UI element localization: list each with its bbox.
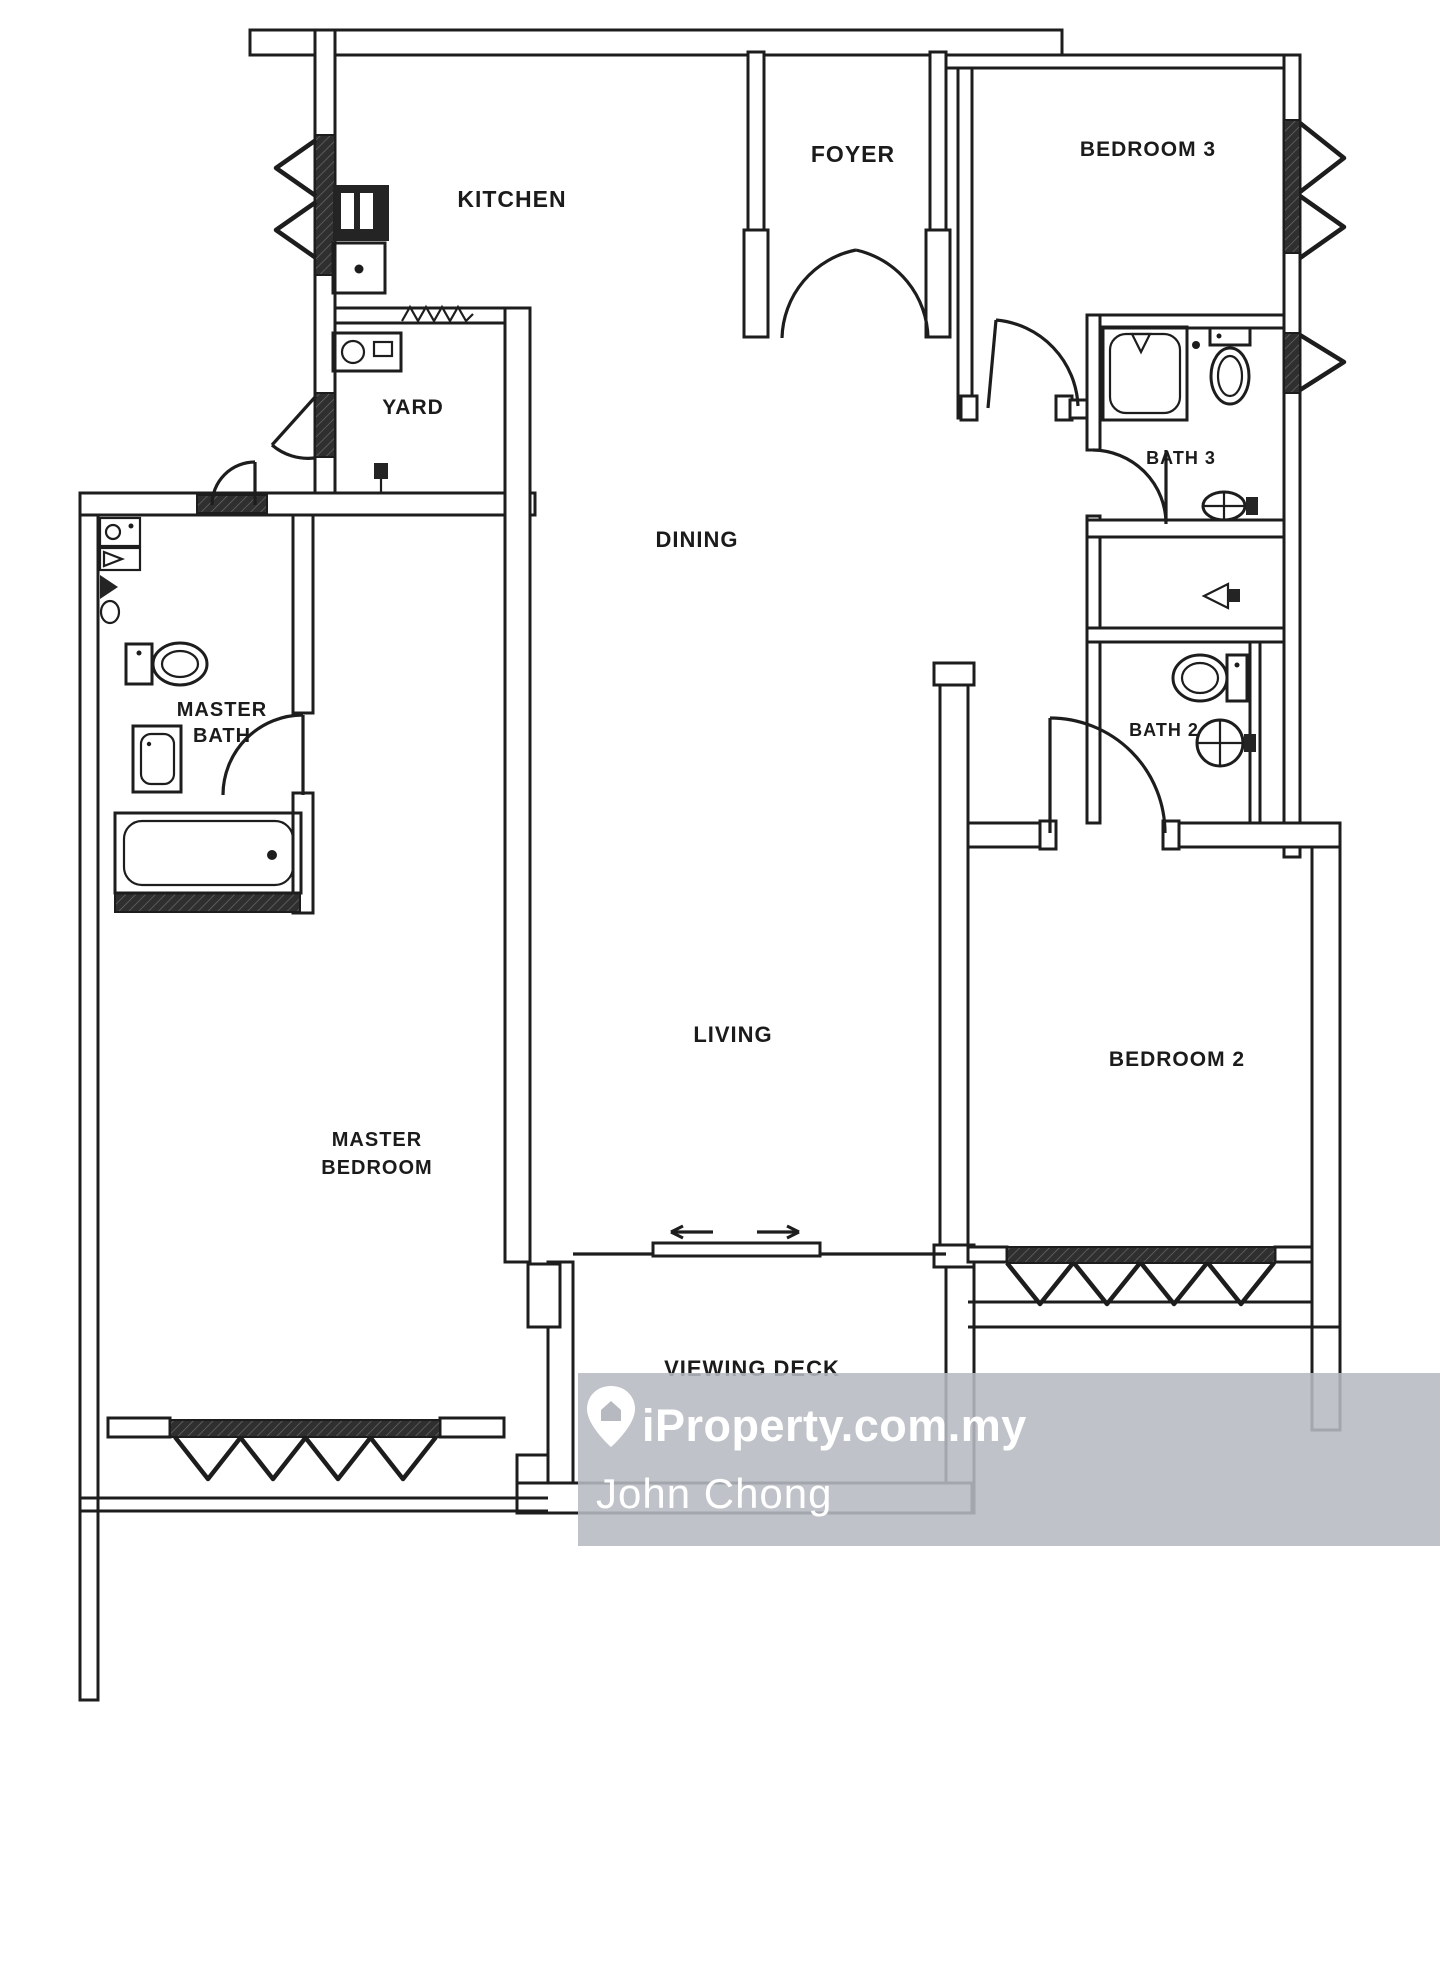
room-label-living: LIVING — [693, 1022, 772, 1047]
brand-text: iProperty.com.my — [642, 1400, 1027, 1451]
bedroom3-window — [1284, 120, 1300, 253]
watermark-background — [578, 1373, 1440, 1546]
room-label-bedroom3: BEDROOM 3 — [1080, 138, 1216, 161]
bedroom2-window — [1007, 1247, 1275, 1263]
master-bedroom-window — [170, 1420, 440, 1437]
agent-name-text: John Chong — [596, 1470, 833, 1517]
room-label-foyer: FOYER — [811, 141, 895, 167]
paper-background — [0, 0, 1440, 1961]
yard-door-panel — [315, 393, 335, 457]
room-label-bath2: BATH 2 — [1129, 720, 1199, 740]
svg-text:MASTER: MASTER — [332, 1129, 422, 1151]
room-label-bath3: BATH 3 — [1146, 448, 1216, 468]
watermark-overlay: iProperty.com.my John Chong — [578, 1373, 1440, 1546]
room-label-bedroom2: BEDROOM 2 — [1109, 1048, 1245, 1071]
svg-text:BATH: BATH — [193, 725, 251, 747]
room-label-kitchen: KITCHEN — [457, 186, 566, 212]
room-label-yard: YARD — [382, 396, 444, 419]
kitchen-sink-counter — [333, 185, 389, 241]
svg-text:BEDROOM: BEDROOM — [321, 1157, 432, 1179]
room-label-dining: DINING — [656, 527, 739, 552]
bath3-window — [1284, 333, 1300, 393]
svg-text:MASTER: MASTER — [177, 699, 267, 721]
floor-plan-svg: KITCHEN FOYER BEDROOM 3 YARD DINING BATH… — [0, 0, 1440, 1961]
